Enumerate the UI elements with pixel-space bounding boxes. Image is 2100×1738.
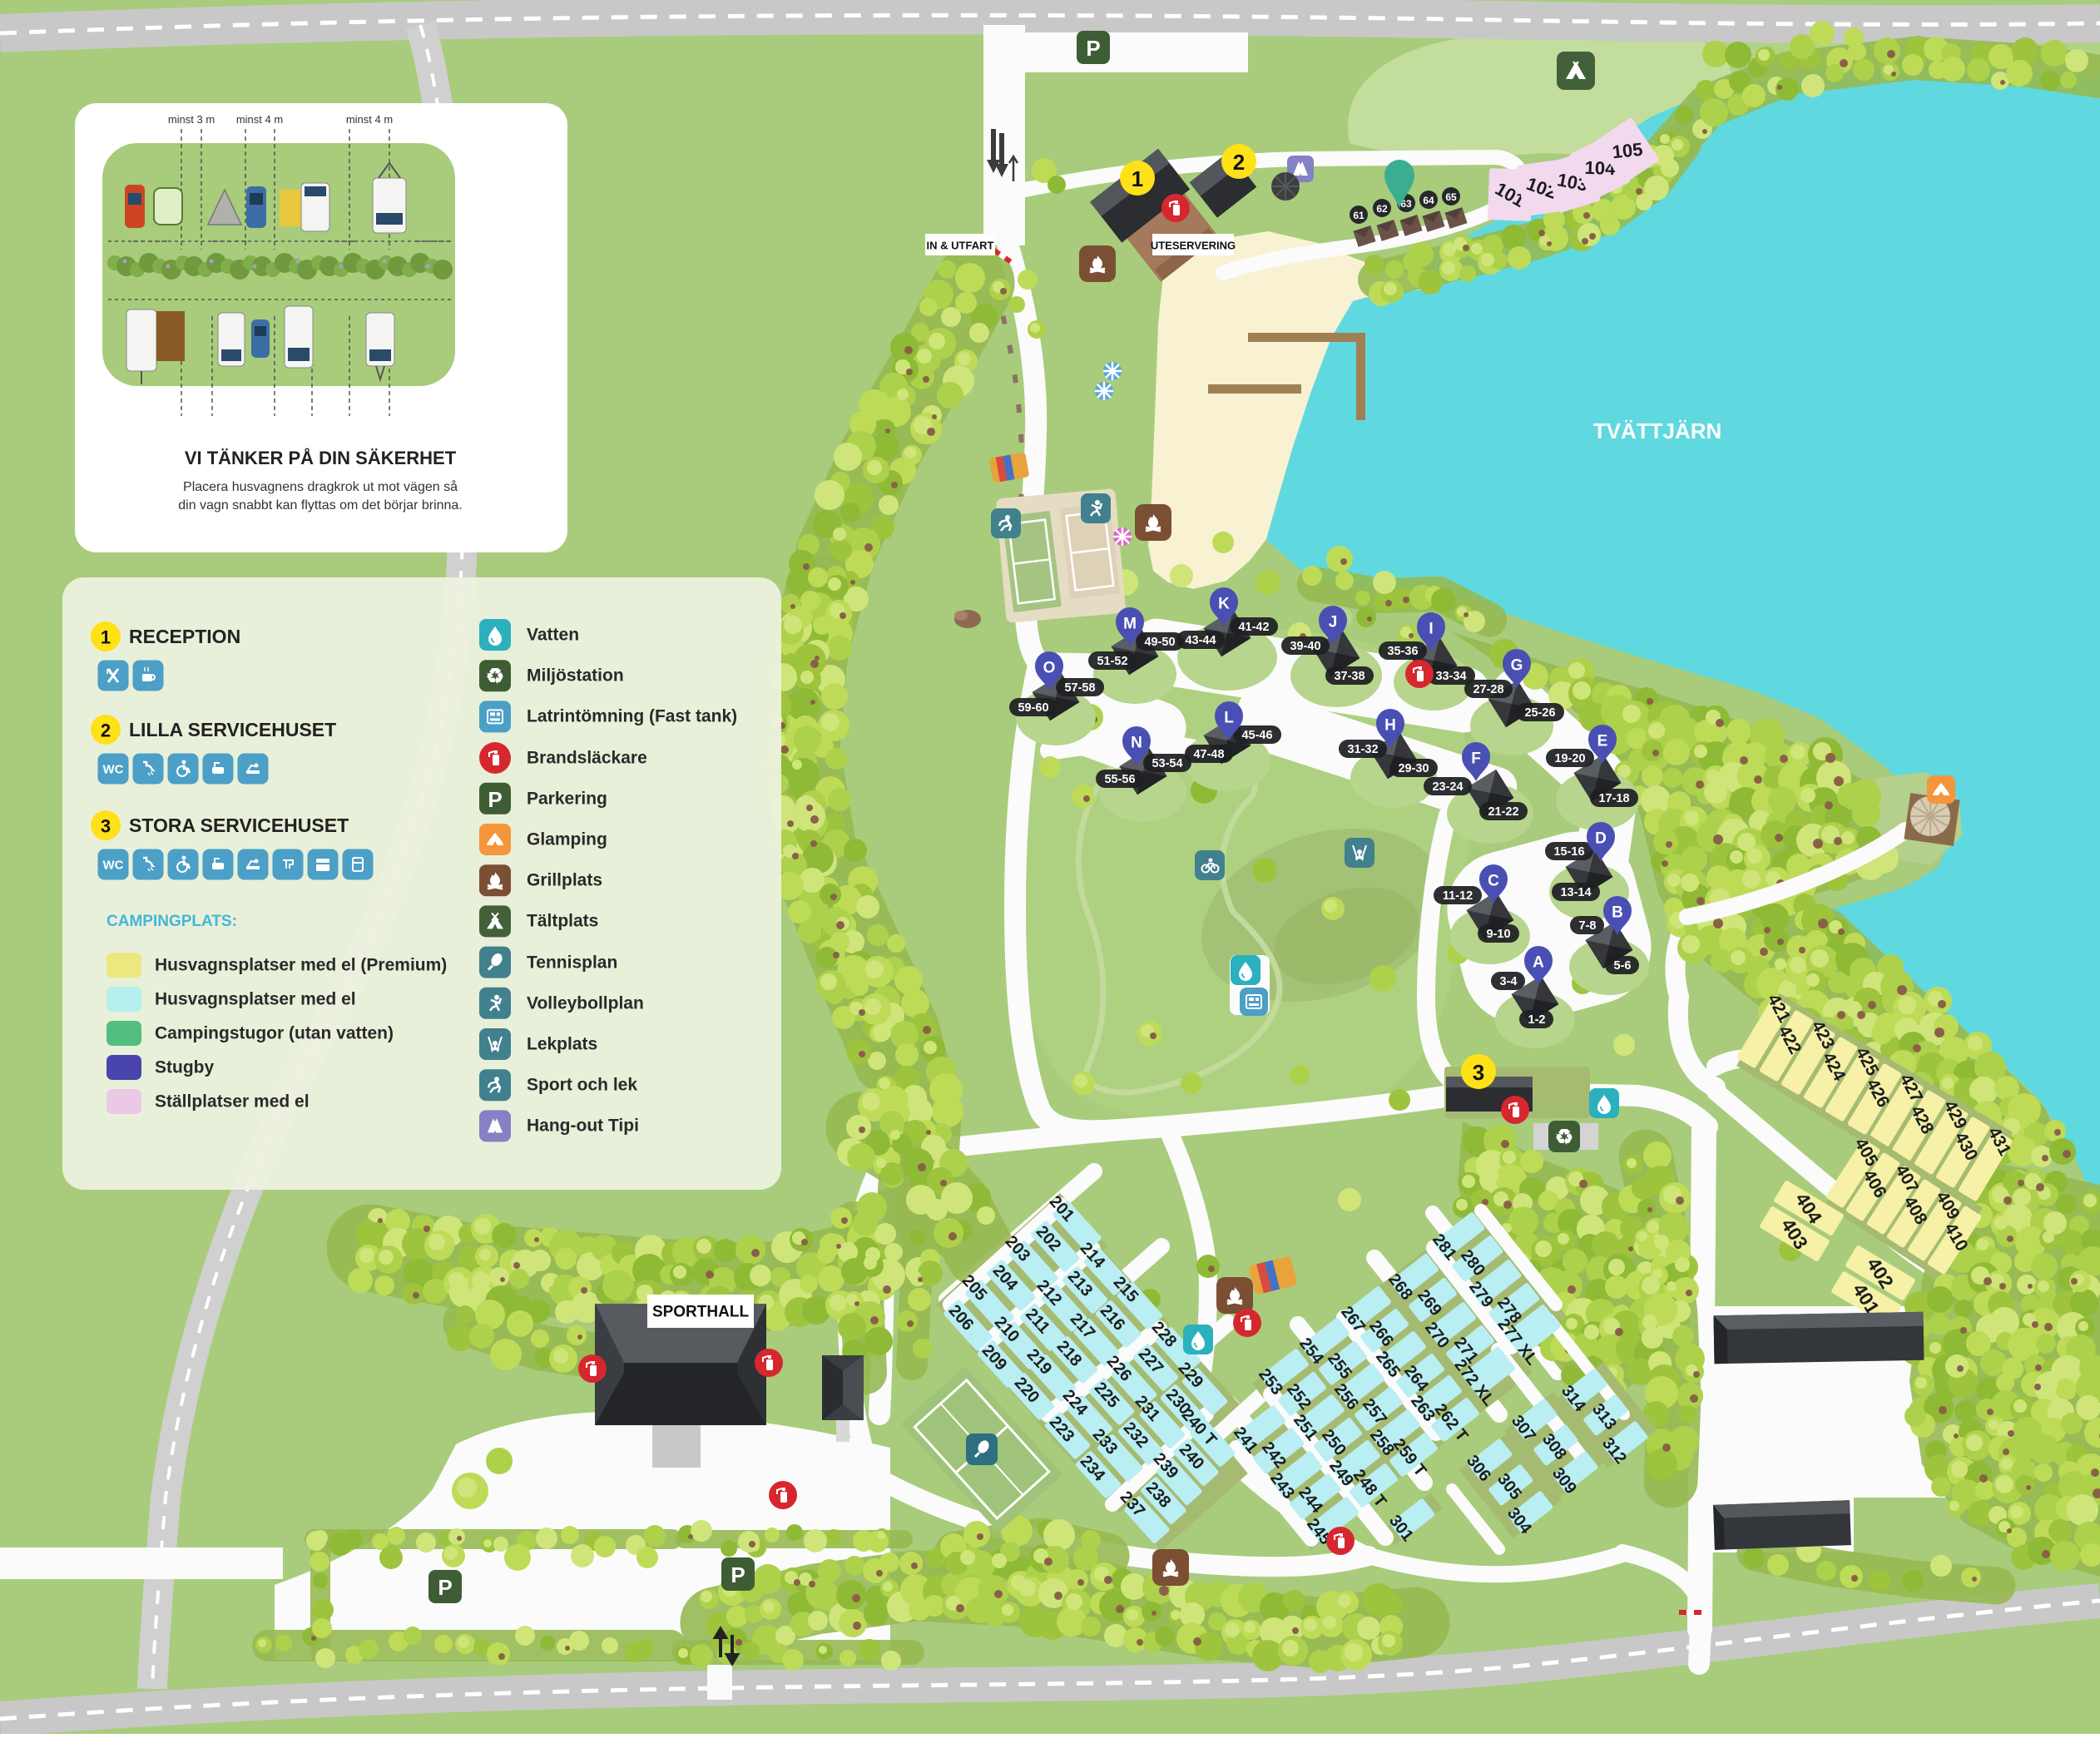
svg-text:minst 3 m: minst 3 m [168,113,215,126]
svg-text:Latrintömning (Fast tank): Latrintömning (Fast tank) [527,707,737,726]
svg-text:E: E [1597,733,1608,750]
svg-text:57-58: 57-58 [1064,681,1095,695]
svg-text:O: O [1043,660,1056,677]
svg-text:P: P [1086,36,1100,61]
svg-text:15-16: 15-16 [1553,845,1584,859]
svg-text:7-8: 7-8 [1579,919,1597,933]
svg-text:1-2: 1-2 [1528,1013,1546,1027]
svg-text:3: 3 [1473,1060,1484,1085]
svg-text:23-24: 23-24 [1432,780,1463,794]
svg-text:K: K [1218,596,1230,613]
svg-text:27-28: 27-28 [1473,683,1503,696]
svg-text:♻: ♻ [1555,1126,1573,1149]
svg-text:STORA SERVICEHUSET: STORA SERVICEHUSET [129,815,349,836]
svg-text:RECEPTION: RECEPTION [129,626,240,647]
svg-text:45-46: 45-46 [1241,729,1272,742]
svg-text:N: N [1131,735,1142,752]
svg-text:Placera husvagnens dragkrok ut: Placera husvagnens dragkrok ut mot vägen… [183,479,458,494]
svg-text:LILLA SERVICEHUSET: LILLA SERVICEHUSET [129,719,336,740]
svg-text:105: 105 [1611,139,1643,163]
svg-text:35-36: 35-36 [1387,645,1418,658]
svg-text:Brandsläckare: Brandsläckare [527,749,647,768]
svg-text:Hang-out Tipi: Hang-out Tipi [527,1117,639,1136]
svg-text:49-50: 49-50 [1144,636,1175,649]
svg-text:H: H [1384,717,1396,735]
svg-text:3: 3 [101,816,111,837]
svg-text:D: D [1595,830,1607,848]
svg-text:41-42: 41-42 [1238,621,1269,634]
svg-text:Tältplats: Tältplats [527,912,598,931]
svg-text:P: P [438,1575,452,1600]
svg-text:Tennisplan: Tennisplan [527,953,617,973]
svg-text:17-18: 17-18 [1598,792,1629,805]
svg-text:29-30: 29-30 [1398,762,1429,775]
svg-text:25-26: 25-26 [1524,706,1555,720]
svg-text:11-12: 11-12 [1443,889,1473,903]
svg-text:Parkering: Parkering [527,790,607,809]
svg-text:F: F [1471,750,1481,768]
svg-text:UTESERVERING: UTESERVERING [1151,240,1236,252]
svg-text:G: G [1511,657,1523,675]
svg-text:19-20: 19-20 [1554,752,1585,765]
svg-text:Glamping: Glamping [527,830,607,849]
svg-text:2: 2 [101,720,111,741]
svg-text:minst 4 m: minst 4 m [346,113,393,126]
svg-text:♻: ♻ [486,665,504,688]
svg-text:59-60: 59-60 [1018,701,1048,715]
svg-text:43-44: 43-44 [1185,634,1216,647]
svg-text:C: C [1488,873,1499,890]
svg-text:Volleybollplan: Volleybollplan [527,994,644,1013]
svg-text:Ställplatser med el: Ställplatser med el [155,1092,310,1112]
svg-text:I: I [1429,621,1433,638]
svg-text:3-4: 3-4 [1500,975,1518,988]
svg-text:WC: WC [103,763,124,777]
svg-text:65: 65 [1445,191,1457,203]
svg-text:P: P [488,787,502,812]
svg-text:SPORTHALL: SPORTHALL [652,1304,750,1321]
svg-text:Husvagnsplatser med el: Husvagnsplatser med el [155,990,356,1009]
svg-text:CAMPINGPLATS:: CAMPINGPLATS: [106,913,237,930]
svg-text:L: L [1224,710,1234,727]
svg-text:Miljöstation: Miljöstation [527,666,624,686]
svg-text:21-22: 21-22 [1488,805,1518,819]
svg-text:Vatten: Vatten [527,626,579,645]
svg-text:P: P [731,1562,745,1587]
svg-text:Lekplats: Lekplats [527,1035,597,1054]
svg-text:Stugby: Stugby [155,1058,214,1077]
svg-text:2: 2 [1233,150,1245,175]
svg-text:33-34: 33-34 [1435,670,1466,683]
svg-text:64: 64 [1423,195,1434,206]
svg-text:53-54: 53-54 [1152,757,1182,770]
svg-text:37-38: 37-38 [1334,670,1365,683]
svg-text:51-52: 51-52 [1097,655,1127,668]
svg-text:62: 62 [1376,203,1388,215]
svg-text:minst 4 m: minst 4 m [236,113,283,126]
svg-text:M: M [1123,616,1137,633]
svg-text:39-40: 39-40 [1290,640,1320,653]
svg-text:Grillplats: Grillplats [527,871,602,890]
svg-text:1: 1 [101,627,111,648]
svg-text:13-14: 13-14 [1560,886,1591,899]
svg-text:5-6: 5-6 [1614,959,1632,973]
svg-text:9-10: 9-10 [1486,928,1510,941]
svg-text:B: B [1612,904,1623,922]
svg-text:IN & UTFART: IN & UTFART [927,240,994,252]
svg-text:A: A [1533,954,1544,972]
svg-text:TVÄTTJÄRN: TVÄTTJÄRN [1593,418,1722,443]
svg-text:VI TÄNKER PÅ DIN SÄKERHET: VI TÄNKER PÅ DIN SÄKERHET [185,447,457,468]
svg-text:WC: WC [103,859,124,873]
svg-text:J: J [1329,614,1338,631]
svg-text:31-32: 31-32 [1347,743,1378,756]
svg-text:55-56: 55-56 [1104,773,1135,786]
svg-text:Sport och lek: Sport och lek [527,1076,637,1095]
svg-text:din vagn snabbt kan flyttas om: din vagn snabbt kan flyttas om det börja… [178,498,463,512]
svg-text:1: 1 [1132,166,1143,191]
svg-text:47-48: 47-48 [1193,748,1224,761]
svg-text:Husvagnsplatser med el (Premiu: Husvagnsplatser med el (Premium) [155,956,447,975]
svg-text:61: 61 [1353,210,1365,221]
svg-text:Campingstugor (utan vatten): Campingstugor (utan vatten) [155,1024,394,1043]
